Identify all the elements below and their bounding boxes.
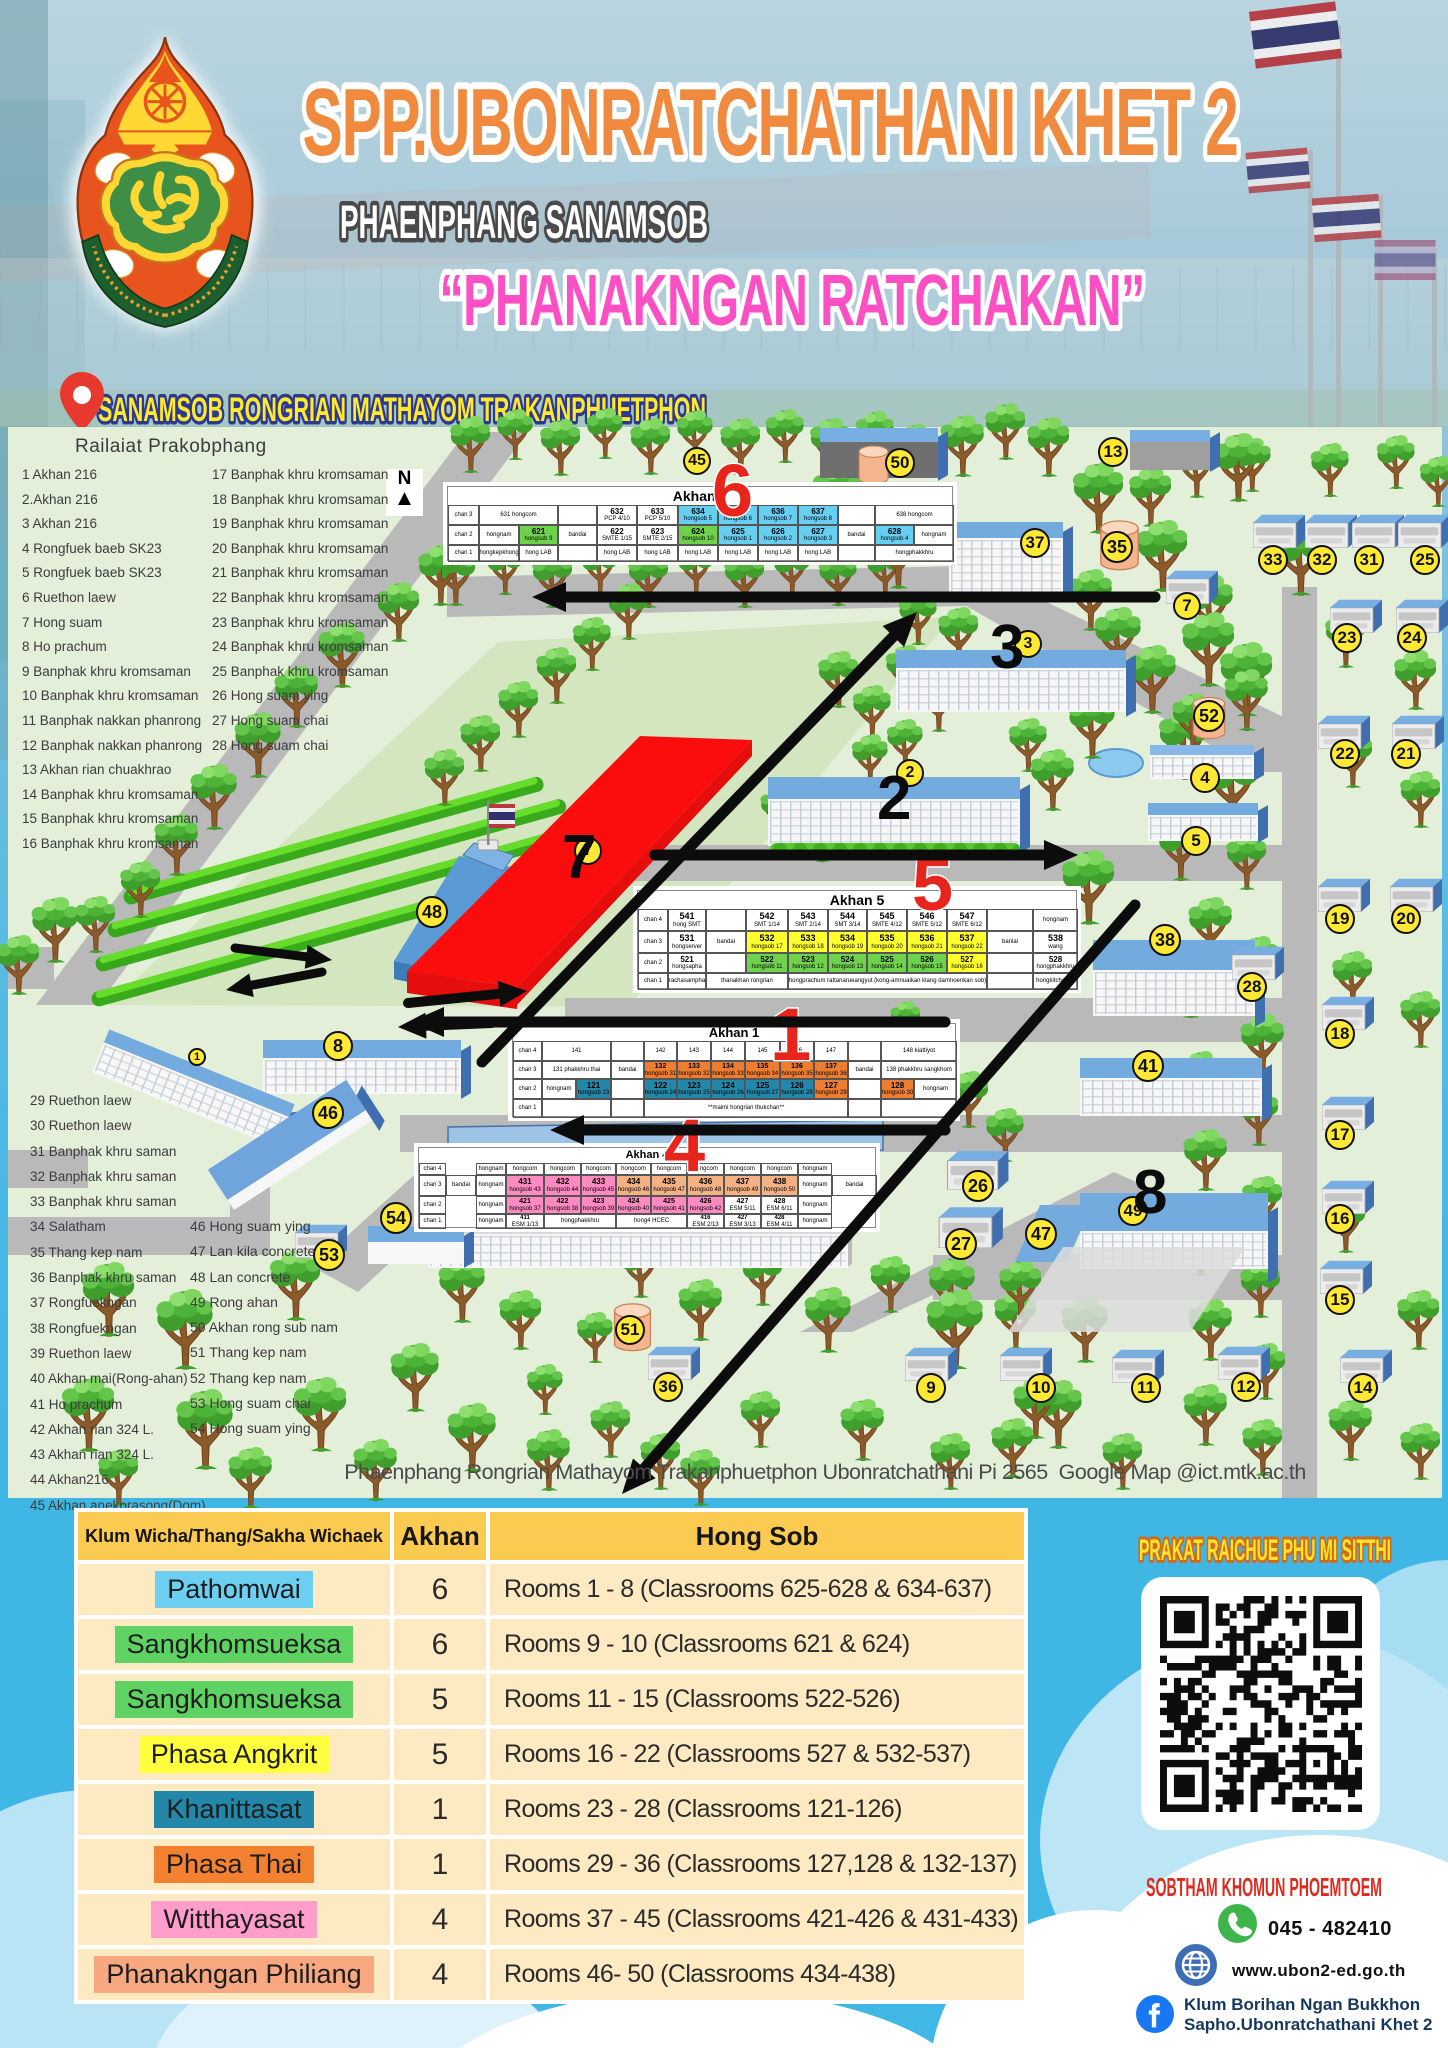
svg-text:SOBTHAM KHOMUN PHOEMTOEM: SOBTHAM KHOMUN PHOEMTOEM [1146, 1872, 1382, 1902]
svg-text:PRAKAT RAICHUE PHU MI SITTHI: PRAKAT RAICHUE PHU MI SITTHI [1139, 1534, 1391, 1567]
